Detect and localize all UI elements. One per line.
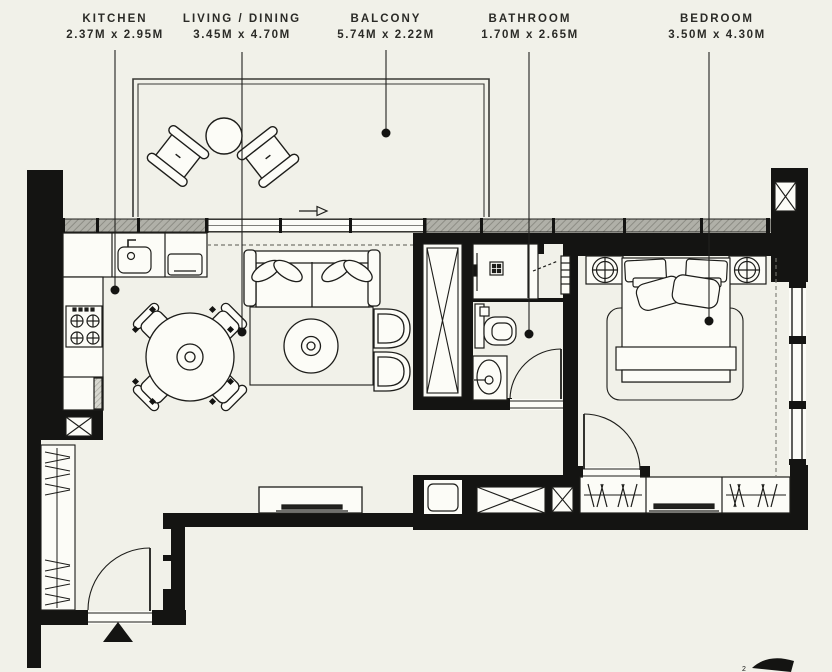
dining-table-icon: [146, 313, 234, 401]
dining-set: [132, 302, 249, 413]
accent-chair-icon: [374, 309, 410, 348]
balcony-round-table-icon: [206, 118, 242, 154]
bedroom-door-icon: [583, 414, 640, 478]
corner-logo-mark: 2: [742, 658, 794, 672]
cabinet-icon: [63, 377, 103, 410]
tv-console-icon: [259, 487, 362, 513]
window-band: [62, 218, 770, 233]
bedroom-window-icon: [789, 282, 806, 465]
bathroom-fixtures: [473, 244, 570, 400]
entrance-arrow-icon: [299, 207, 327, 216]
toilet-icon: [475, 304, 516, 348]
nightstand-lamp-icon: [735, 258, 760, 283]
washer-icon: [424, 477, 462, 514]
coffee-table-icon: [284, 319, 338, 373]
shower-icon: [473, 244, 570, 299]
coat-wardrobe-icon: [41, 445, 75, 610]
balcony-furniture: [146, 118, 327, 216]
entry-triangle-icon: [103, 622, 133, 642]
sofa-icon: [244, 250, 380, 307]
bathroom-door-icon: [510, 349, 563, 410]
balcony-armchair-icon: [236, 125, 301, 189]
vanity-basin-icon: [473, 356, 507, 400]
floor-plan: KITCHEN 2.37M x 2.95M LIVING / DINING 3.…: [0, 0, 832, 672]
linen-shaft-icon: [423, 244, 462, 397]
living-furniture: [244, 250, 410, 513]
balcony-armchair-icon: [146, 124, 211, 188]
floor-plan-svg: 2: [0, 0, 832, 672]
wall-niche: [163, 529, 171, 555]
corner-logo-text: 2: [742, 666, 746, 672]
double-bed-icon: [616, 258, 736, 382]
nightstand-lamp-icon: [593, 258, 618, 283]
entry-door-icon: [88, 548, 152, 624]
wall-niche: [163, 561, 171, 589]
accent-chair-icon: [374, 352, 410, 391]
